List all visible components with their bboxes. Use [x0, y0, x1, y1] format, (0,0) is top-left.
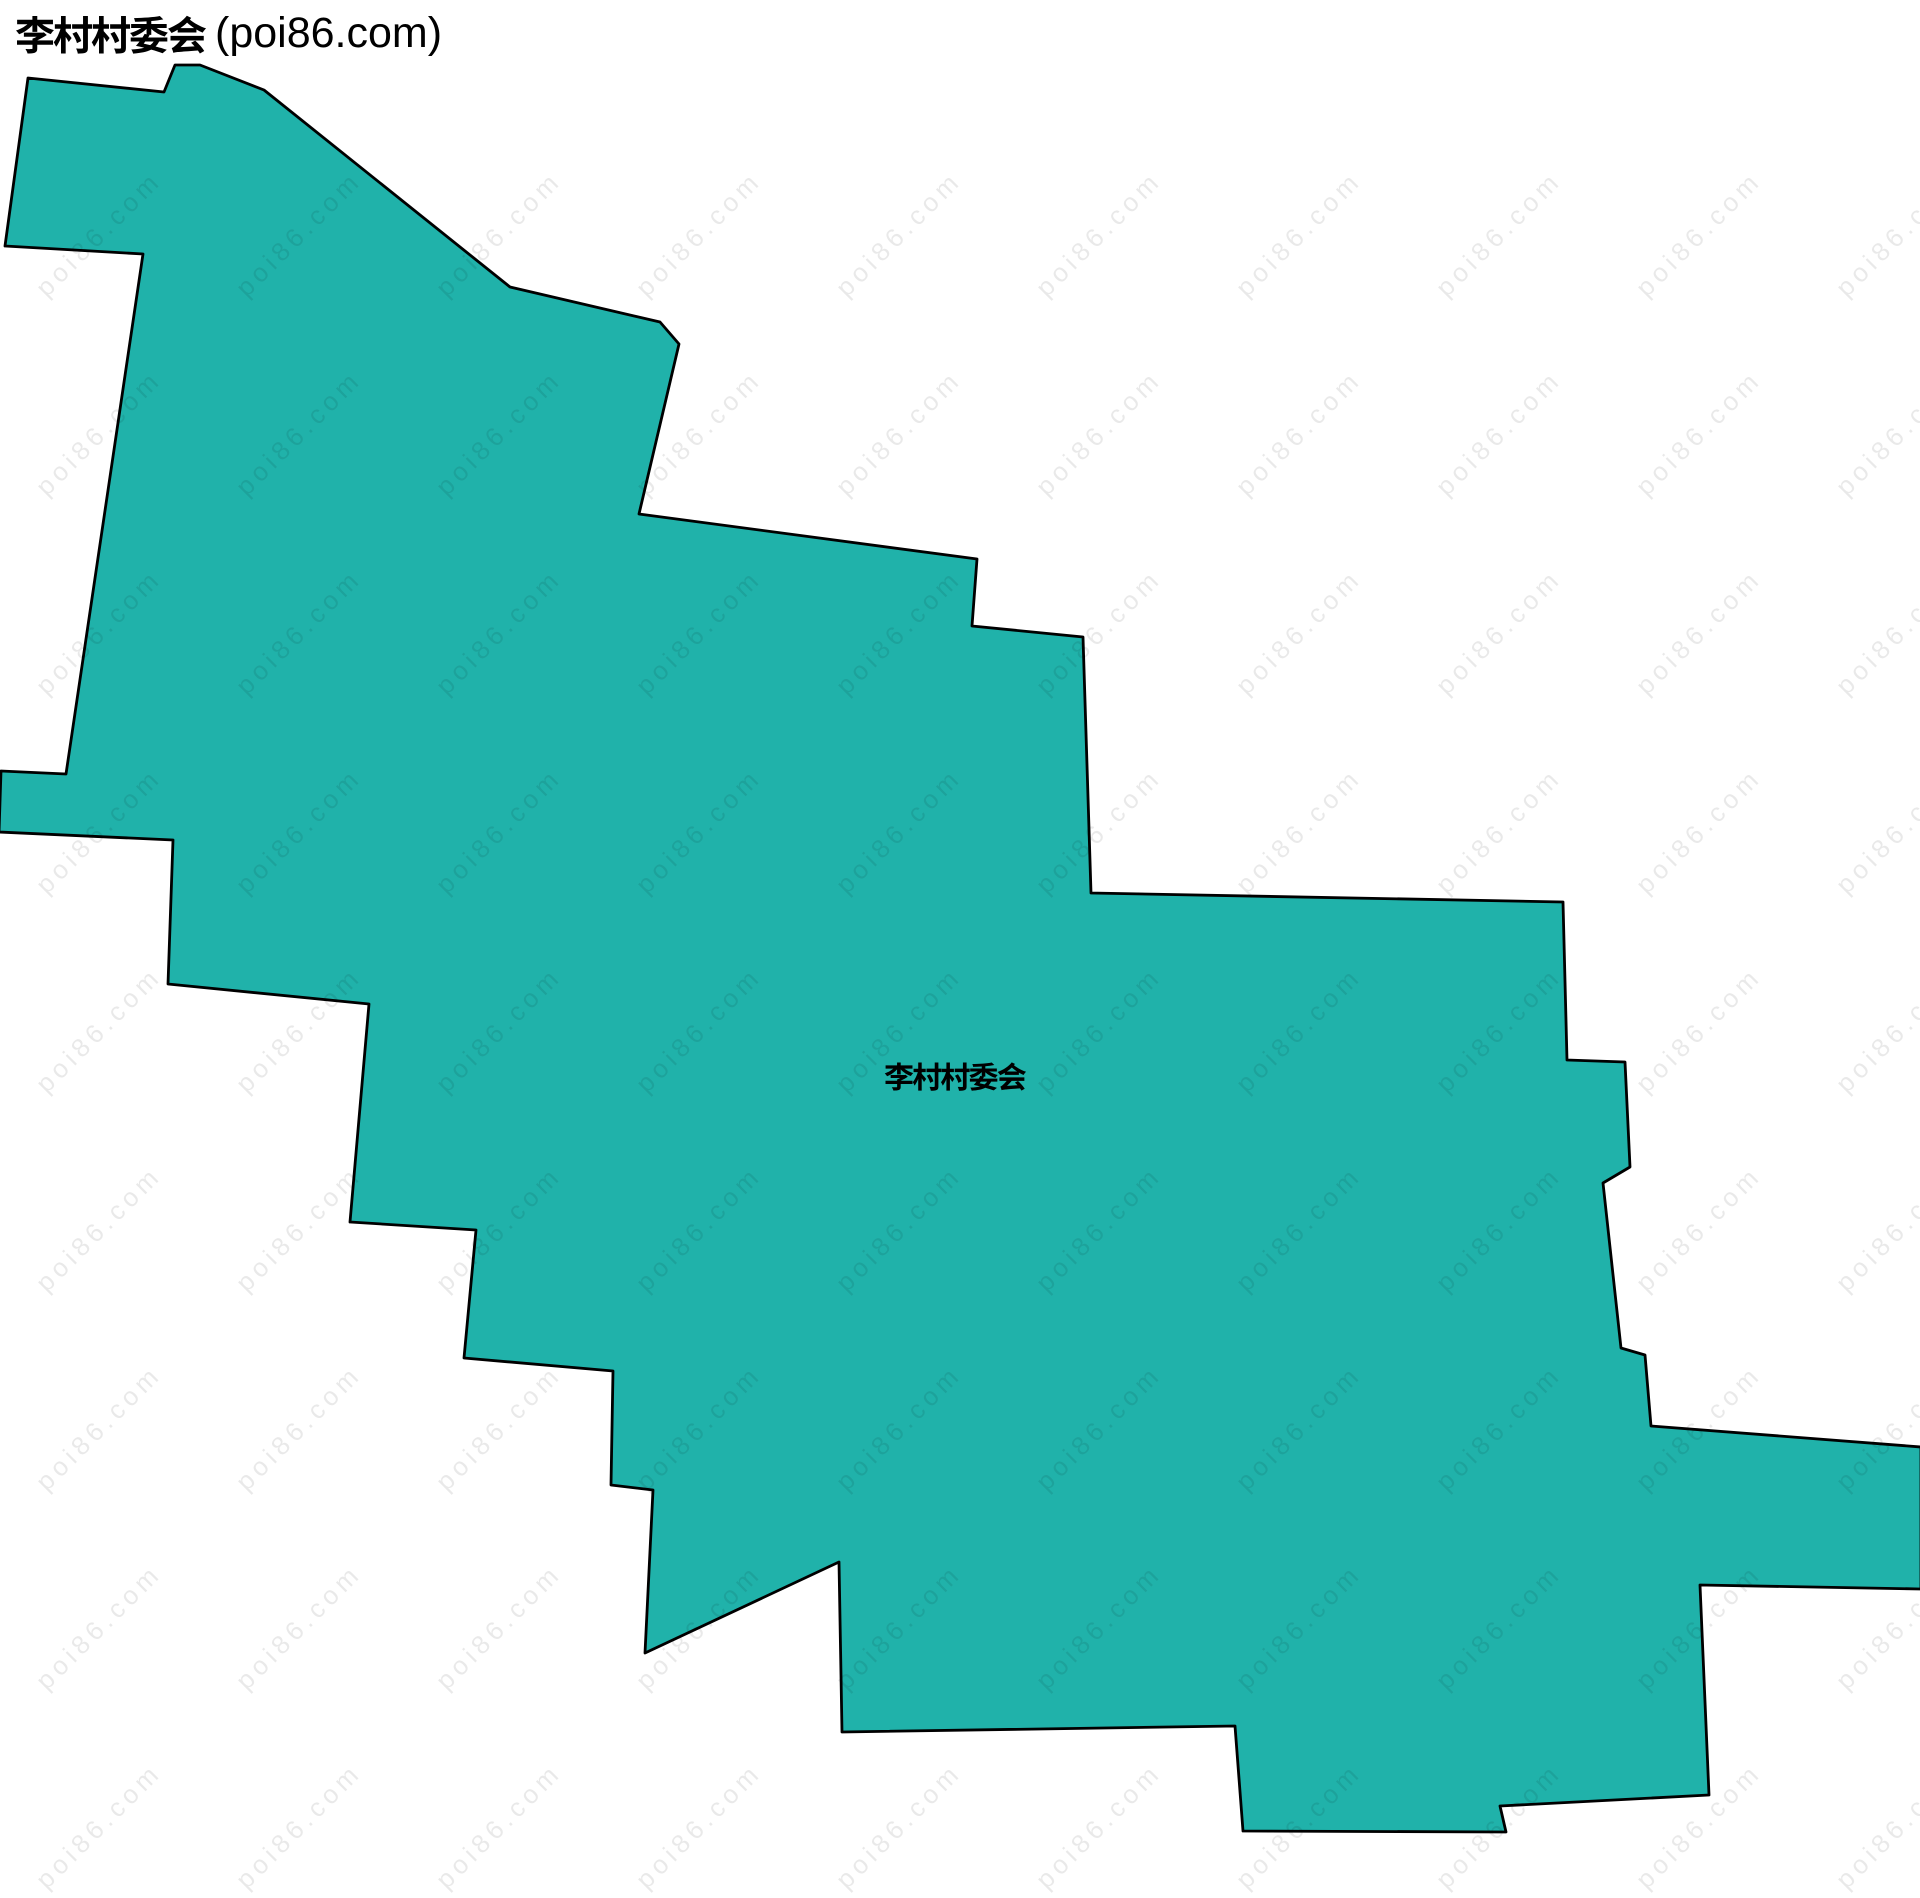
svg-text:(poi86.com): (poi86.com) — [215, 9, 442, 57]
